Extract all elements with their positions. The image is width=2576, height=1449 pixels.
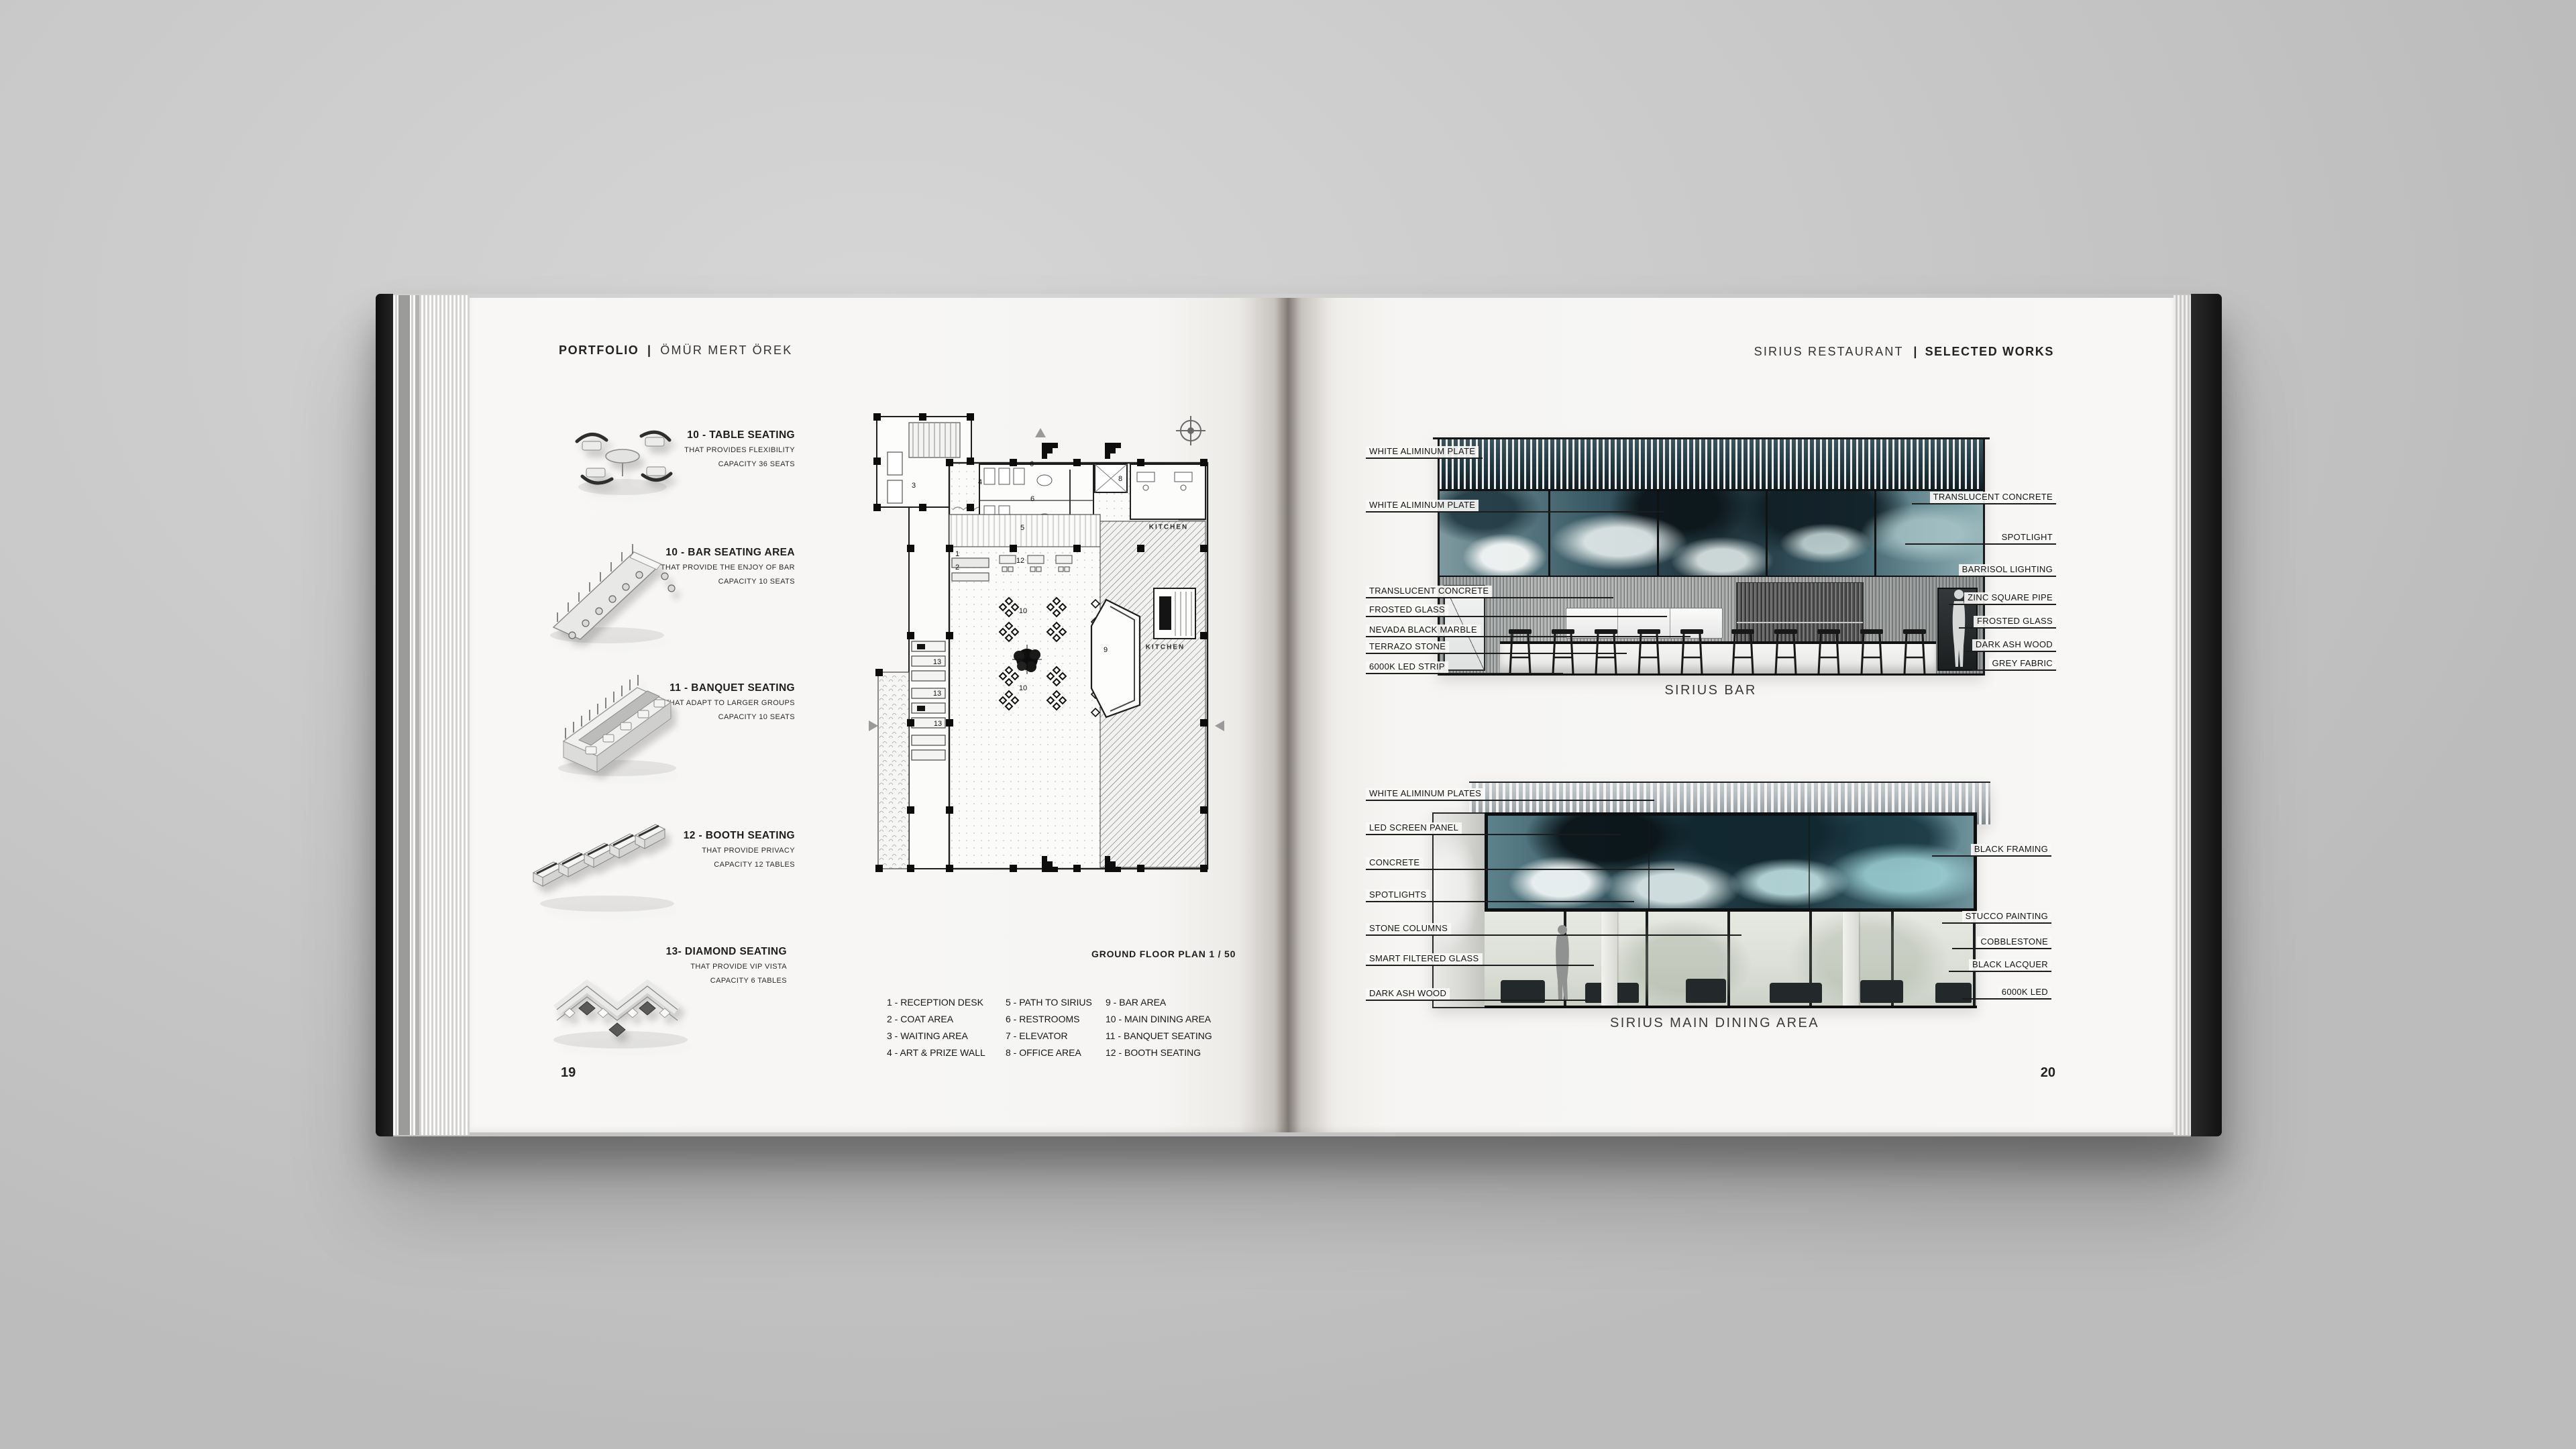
dining-left-wall xyxy=(1432,812,1488,1008)
north-arrow-icon xyxy=(1176,416,1205,445)
legend-item: 11 - BANQUET SEATING xyxy=(1106,1028,1212,1044)
booth-seating-illustration-icon xyxy=(527,802,688,919)
dining-sofa xyxy=(1770,983,1822,1003)
header-separator: | xyxy=(647,343,652,357)
dining-sofa xyxy=(1686,979,1726,1003)
plan-arrow-icon xyxy=(869,720,878,731)
material-label: BARRISOL LIGHTING xyxy=(1935,559,2056,577)
material-label: SPOTLIGHTS xyxy=(1366,885,1634,902)
material-label: COBBLESTONE xyxy=(1952,932,2051,949)
portfolio-title: PORTFOLIO xyxy=(559,343,639,357)
material-label: WHITE ALIMINUM PLATE xyxy=(1366,495,1664,513)
legend-item: 8 - OFFICE AREA xyxy=(1006,1044,1092,1061)
page-stack-band xyxy=(398,295,410,1135)
plan-room-number: 7 xyxy=(1073,458,1077,466)
legend-item: 9 - BAR AREA xyxy=(1106,994,1212,1011)
legend-item: 1 - RECEPTION DESK xyxy=(887,994,985,1011)
legend-item: 10 - MAIN DINING AREA xyxy=(1106,1011,1212,1028)
plan-arrow-icon xyxy=(1035,428,1046,437)
material-label: 6000K LED xyxy=(1962,982,2051,1000)
plan-room-number: 3 xyxy=(912,482,916,490)
plan-room-number: 13 xyxy=(933,658,941,666)
bar-elevation-caption: SIRIUS BAR xyxy=(1597,683,1825,698)
legend-item: 12 - BOOTH SEATING xyxy=(1106,1044,1212,1061)
legend-item: 2 - COAT AREA xyxy=(887,1011,985,1028)
plan-legend-column: 1 - RECEPTION DESK 2 - COAT AREA 3 - WAI… xyxy=(887,994,985,1061)
plan-room-number: 8 xyxy=(1118,475,1122,483)
left-page-header: PORTFOLIO | ÖMÜR MERT ÖREK xyxy=(559,343,792,358)
material-label: 6000K LED STRIP xyxy=(1366,657,1563,674)
plan-room-number: 5 xyxy=(1020,524,1024,532)
plan-room-number: 4 xyxy=(978,478,982,486)
bar-ceiling-slats xyxy=(1440,439,1983,490)
plan-arrow-icon xyxy=(1215,720,1224,731)
dining-elevation-caption: SIRIUS MAIN DINING AREA xyxy=(1563,1016,1866,1031)
plan-room-number: 10 xyxy=(1019,684,1027,692)
material-label: BLACK LACQUER xyxy=(1949,955,2051,972)
table-seating-illustration-icon xyxy=(555,415,696,502)
material-label: TERRAZO STONE xyxy=(1366,637,1627,654)
page-number-right: 20 xyxy=(2025,1065,2055,1081)
plan-room-number: 2 xyxy=(955,563,959,572)
material-label: STONE COLUMNS xyxy=(1366,918,1741,936)
book-front-cover-edge xyxy=(376,294,393,1136)
plan-legend-column: 5 - PATH TO SIRIUS 6 - RESTROOMS 7 - ELE… xyxy=(1006,994,1092,1061)
material-label: SMART FILTERED GLASS xyxy=(1366,949,1594,966)
book-back-cover-edge xyxy=(2191,294,2222,1136)
left-page-stack-edge xyxy=(393,295,470,1135)
legend-item: 6 - RESTROOMS xyxy=(1006,1011,1092,1028)
page-stack-band xyxy=(415,295,419,1135)
plan-kitchen-label: KITCHEN xyxy=(1146,644,1185,651)
plan-room-number: 6 xyxy=(1030,460,1034,468)
banquet-seating-illustration-icon xyxy=(547,661,688,785)
mural-panel-divider xyxy=(1874,491,1876,576)
diamond-seating-illustration-icon xyxy=(540,922,701,1057)
material-label: DARK ASH WOOD xyxy=(1366,983,1587,1001)
plan-room-number: 13 xyxy=(933,690,941,698)
plan-caption: GROUND FLOOR PLAN 1 / 50 xyxy=(1091,949,1236,959)
plan-room-number: 13 xyxy=(934,720,942,728)
material-label: FROSTED GLASS xyxy=(1959,611,2056,629)
material-label: TRANSLUCENT CONCRETE xyxy=(1912,487,2056,504)
plan-legend-column: 9 - BAR AREA 10 - MAIN DINING AREA 11 - … xyxy=(1106,994,1212,1061)
plan-room-number: 9 xyxy=(1104,646,1108,654)
material-label: SPOTLIGHT xyxy=(1905,527,2056,545)
material-label: LED SCREEN PANEL xyxy=(1366,818,1621,835)
plan-kitchen-label: KITCHEN xyxy=(1149,524,1188,531)
bar-seating-illustration-icon xyxy=(533,520,688,651)
page-number-left: 19 xyxy=(561,1065,576,1081)
header-separator: | xyxy=(1913,345,1918,358)
material-label: STUCCO PAINTING xyxy=(1942,906,2051,924)
plan-room-number: 6 xyxy=(1030,495,1034,503)
material-label: FROSTED GLASS xyxy=(1366,600,1667,617)
right-page-stack-edge xyxy=(2173,295,2191,1135)
material-label: GREY FABRIC xyxy=(1972,653,2056,671)
plan-room-number: 1 xyxy=(955,550,959,558)
desk-background: PORTFOLIO | ÖMÜR MERT ÖREK 19 10 - TABLE… xyxy=(0,0,2576,1449)
legend-item: 7 - ELEVATOR xyxy=(1006,1028,1092,1044)
material-label: NEVADA BLACK MARBLE xyxy=(1366,620,1690,637)
plan-room-number: 12 xyxy=(1016,557,1024,565)
material-label: WHITE ALIMINUM PLATE xyxy=(1366,441,1483,459)
legend-item: 4 - ART & PRIZE WALL xyxy=(887,1044,985,1061)
material-label: ZINC SQUARE PIPE xyxy=(1949,588,2056,605)
mural-panel-divider xyxy=(1766,491,1768,576)
stone-column xyxy=(1843,912,1859,1006)
material-label: WHITE ALIMINUM PLATES xyxy=(1366,784,1654,801)
material-label: CONCRETE xyxy=(1366,853,1674,870)
legend-item: 5 - PATH TO SIRIUS xyxy=(1006,994,1092,1011)
dining-sofa xyxy=(1860,980,1903,1003)
plan-room-number: 10 xyxy=(1019,607,1027,615)
author-name: ÖMÜR MERT ÖREK xyxy=(660,343,792,357)
legend-item: 3 - WAITING AREA xyxy=(887,1028,985,1044)
section-name: SELECTED WORKS xyxy=(1925,345,2054,358)
material-label: TRANSLUCENT CONCRETE xyxy=(1366,581,1613,598)
material-label: BLACK FRAMING xyxy=(1932,839,2051,857)
project-name: SIRIUS RESTAURANT xyxy=(1754,345,1904,358)
right-page-header: SIRIUS RESTAURANT | SELECTED WORKS xyxy=(1744,345,2054,359)
material-label: DARK ASH WOOD xyxy=(1966,635,2056,652)
mural-panel-divider xyxy=(1809,816,1810,908)
